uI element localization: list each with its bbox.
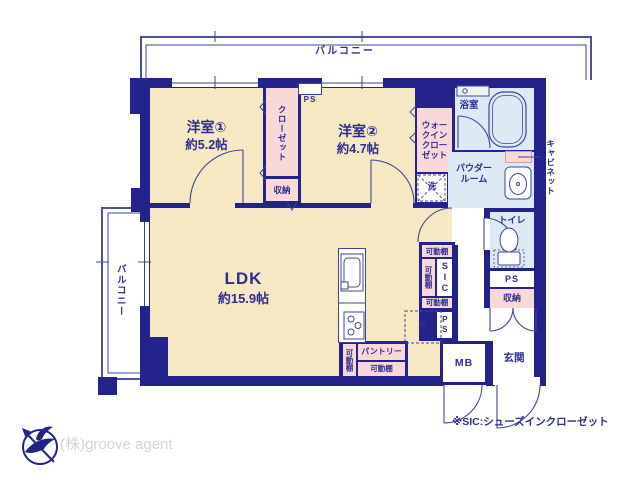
window-room1 <box>172 76 258 89</box>
wic-label: ウォークインクローゼット <box>417 108 452 172</box>
storage2-label: 収納 <box>490 289 534 308</box>
ps-top-label: PS <box>296 95 324 105</box>
fridge-label: 冷 <box>405 320 441 333</box>
agency-logo-icon <box>22 427 57 464</box>
room2-label: 洋室② 約4.7帖 <box>301 114 415 166</box>
bathtub-icon <box>457 86 526 147</box>
powder-label: パウダールーム <box>452 160 496 188</box>
ps-right-label: PS <box>490 271 534 287</box>
vanity-sink-icon <box>505 167 531 199</box>
balcony-top-label: バルコニー <box>280 46 410 60</box>
kitchen-sink-icon <box>339 254 365 303</box>
entrance-label: 玄関 <box>492 352 536 368</box>
sic-shelf-bottom-label: 可動棚 <box>422 297 452 308</box>
cabinet-label: キャビネット <box>543 124 558 210</box>
ldk-label: LDK 約15.9帖 <box>156 264 331 312</box>
mb-label: MB <box>440 341 488 385</box>
agency-name: (株)groove agent <box>60 436 240 456</box>
toilet-label: トイレ <box>490 215 534 227</box>
storage1-label: 収納 <box>266 179 298 201</box>
bath-label: 浴室 <box>445 100 493 113</box>
plan-lines <box>0 0 640 480</box>
balcony-left-label: バルコニー <box>109 248 131 332</box>
sic-label: SIC <box>437 258 452 296</box>
sic-shelf-top-label: 可動棚 <box>422 245 452 257</box>
closet-label: クローゼット <box>266 94 298 172</box>
pantry-shelf-bottom-label: 可動棚 <box>358 361 405 376</box>
pantry-shelf-left-label: 可動棚 <box>343 344 356 376</box>
room1-label: 洋室① 約5.2帖 <box>150 110 263 162</box>
sic-note: ※SIC:シューズインクローゼット <box>452 416 637 429</box>
pantry-label: パントリー <box>358 344 405 360</box>
washer-label: 洗 <box>417 181 447 194</box>
ps-sic-label: PS <box>437 311 452 338</box>
window-ldk-left <box>138 222 151 306</box>
sic-shelf-left-label: 可動棚 <box>422 259 435 296</box>
stove-icon <box>344 312 364 339</box>
floor-plan: バルコニー バルコニー 洋室① 約5.2帖 洋室② 約4.7帖 LDK 約15.… <box>0 0 640 480</box>
window-room2 <box>322 76 383 89</box>
toilet-icon <box>494 228 524 267</box>
